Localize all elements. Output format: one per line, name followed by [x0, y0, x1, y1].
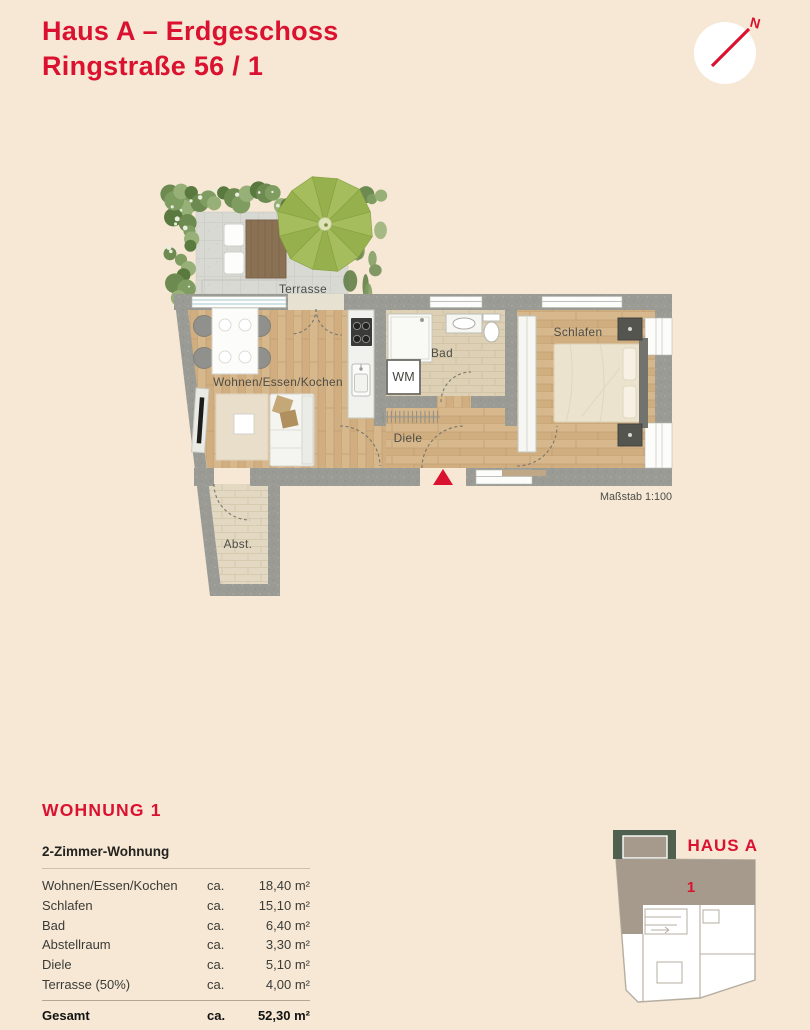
- apartment-title: WOHNUNG 1: [42, 800, 310, 821]
- row-ca: ca.: [207, 876, 240, 896]
- row-ca: ca.: [207, 916, 240, 936]
- unit-number: 1: [687, 879, 695, 896]
- pillow-1: [623, 348, 636, 380]
- bedroom-side-window-2: [645, 423, 672, 468]
- storage-label: Abst.: [224, 537, 253, 551]
- umbrella-icon: [278, 177, 373, 272]
- table-row: Diele ca. 5,10 m²: [42, 955, 310, 975]
- minimap: 1: [598, 812, 773, 1030]
- row-ca: ca.: [207, 935, 240, 955]
- entrance-marker: [433, 469, 453, 485]
- table-row: Bad ca. 6,40 m²: [42, 916, 310, 936]
- pillow-2: [623, 386, 636, 418]
- row-ca: ca.: [207, 896, 240, 916]
- bedroom-window: [542, 297, 622, 308]
- page-title: Haus A – Erdgeschoss Ringstraße 56 / 1: [42, 14, 339, 84]
- kitchen-counter: [348, 310, 374, 418]
- bath-label: Bad: [431, 346, 453, 360]
- title-line-1: Haus A – Erdgeschoss: [42, 14, 339, 49]
- row-name: Bad: [42, 916, 207, 936]
- total-ca: ca.: [207, 1006, 240, 1026]
- washbasin: [446, 314, 482, 333]
- floorplan: Terrasse: [150, 168, 695, 608]
- row-name: Schlafen: [42, 896, 207, 916]
- row-area: 3,30 m²: [240, 935, 310, 955]
- washing-machine-label: WM: [392, 370, 414, 384]
- sofa-pillow-2: [280, 410, 299, 429]
- row-area: 5,10 m²: [240, 955, 310, 975]
- row-area: 18,40 m²: [240, 876, 310, 896]
- headboard: [639, 338, 648, 428]
- bedroom-side-window-1: [645, 318, 672, 355]
- table-row: Abstellraum ca. 3,30 m²: [42, 935, 310, 955]
- total-name: Gesamt: [42, 1006, 207, 1026]
- living-window: [192, 297, 286, 308]
- apartment-summary: WOHNUNG 1 2-Zimmer-Wohnung Wohnen/Essen/…: [42, 800, 310, 1026]
- brochure-page: Haus A – Erdgeschoss Ringstraße 56 / 1 N: [0, 0, 810, 1030]
- living-label: Wohnen/Essen/Kochen: [213, 375, 343, 389]
- compass-north-label: N: [748, 14, 762, 32]
- toilet: [483, 314, 500, 342]
- hall-label: Diele: [394, 431, 423, 445]
- row-name: Diele: [42, 955, 207, 975]
- coffee-table: [234, 414, 254, 434]
- row-name: Abstellraum: [42, 935, 207, 955]
- row-name: Wohnen/Essen/Kochen: [42, 876, 207, 896]
- row-area: 15,10 m²: [240, 896, 310, 916]
- shower: [388, 314, 432, 362]
- apartment-subtitle: 2-Zimmer-Wohnung: [42, 844, 310, 869]
- total-area: 52,30 m²: [240, 1006, 310, 1026]
- bedroom-label: Schlafen: [554, 325, 603, 339]
- area-table: Wohnen/Essen/Kochen ca. 18,40 m² Schlafe…: [42, 869, 310, 1026]
- terrace-door-threshold: [288, 294, 344, 310]
- sofa: [270, 394, 314, 466]
- terrace-label: Terrasse: [279, 282, 327, 296]
- table-row: Wohnen/Essen/Kochen ca. 18,40 m²: [42, 876, 310, 896]
- hall-sill: [502, 470, 546, 476]
- terrace: Terrasse: [160, 177, 387, 312]
- row-area: 6,40 m²: [240, 916, 310, 936]
- row-ca: ca.: [207, 975, 240, 995]
- table-total-row: Gesamt ca. 52,30 m²: [42, 1000, 310, 1026]
- row-ca: ca.: [207, 955, 240, 975]
- bath-window: [430, 297, 482, 308]
- minimap-terrace: [623, 836, 667, 858]
- compass-icon: N: [686, 8, 778, 92]
- washing-machine: WM: [387, 360, 420, 394]
- kitchen-sink: [352, 364, 370, 396]
- row-name: Terrasse (50%): [42, 975, 207, 995]
- table-row: Terrasse (50%) ca. 4,00 m²: [42, 975, 310, 995]
- row-area: 4,00 m²: [240, 975, 310, 995]
- title-line-2: Ringstraße 56 / 1: [42, 49, 339, 84]
- scale-label: Maßstab 1:100: [600, 491, 672, 503]
- table-row: Schlafen ca. 15,10 m²: [42, 896, 310, 916]
